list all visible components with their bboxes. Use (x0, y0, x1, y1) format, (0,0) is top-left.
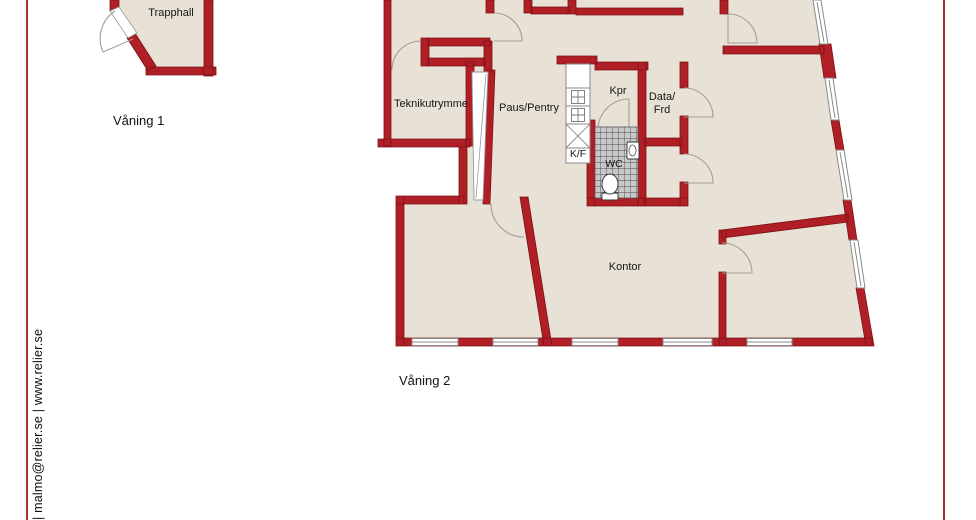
floor2-caption: Våning 2 (399, 373, 450, 388)
room-label-wc: WC (605, 158, 623, 171)
room-label-kontor: Kontor (609, 261, 641, 274)
window (412, 339, 458, 346)
stove-icon (566, 88, 590, 124)
floor-plan-drawing (0, 0, 976, 520)
room-label-trapphall: Trapphall (148, 7, 193, 20)
window (747, 339, 792, 346)
fridge-freezer-icon (566, 124, 590, 148)
room-label-data-frd-line1: Data/ (649, 91, 675, 104)
window (493, 339, 538, 346)
floor1-caption: Våning 1 (113, 113, 164, 128)
window (572, 339, 618, 346)
window (663, 339, 712, 346)
floor-plan-page: Trapphall Teknikutrymme Paus/Pentry Kpr … (0, 0, 976, 520)
sink-icon (627, 142, 639, 159)
room-label-kf: K/F (570, 148, 586, 161)
contact-info-vertical-text: | malmo@relier.se | www.relier.se (31, 329, 45, 520)
room-label-data-frd-line2: Frd (649, 104, 675, 117)
room-label-data-frd: Data/ Frd (649, 91, 675, 117)
room-label-teknikutrymme: Teknikutrymme (394, 98, 468, 111)
toilet-icon (602, 174, 618, 200)
room-label-paus-pentry: Paus/Pentry (499, 102, 559, 115)
floor2-plan (378, 0, 874, 346)
room-label-kpr: Kpr (609, 85, 626, 98)
